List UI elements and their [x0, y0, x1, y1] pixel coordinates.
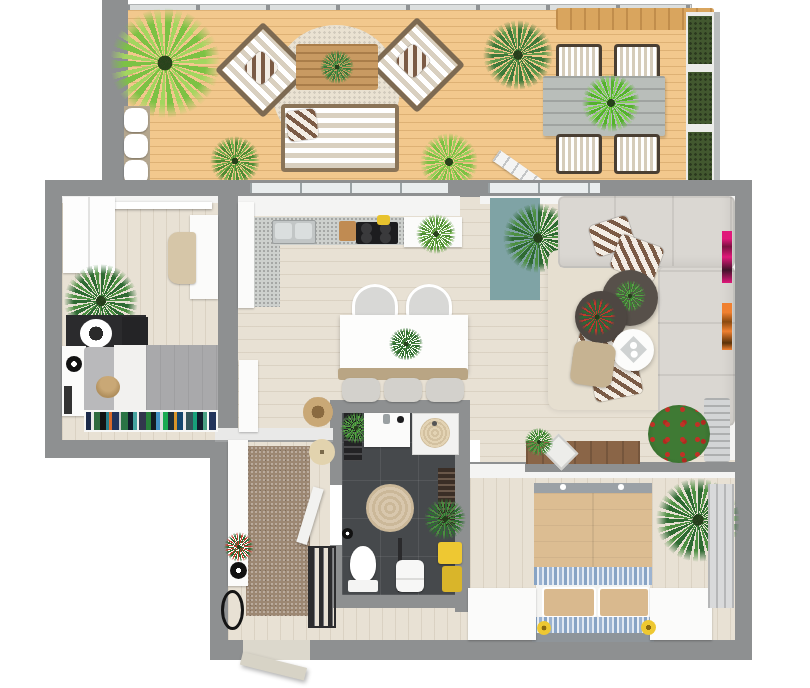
sideboard-plant	[524, 428, 554, 456]
daybed-sheet	[114, 345, 146, 415]
island-plant	[388, 328, 424, 360]
bed-sheet-patterned	[534, 567, 652, 585]
office-black-cabinet	[122, 317, 148, 348]
toilet-brush	[342, 528, 353, 539]
terrace-palm-plant	[110, 8, 220, 118]
bookshelf-books	[86, 412, 216, 430]
apartment-left-wall	[45, 180, 62, 458]
kitchen-counter-left	[254, 245, 280, 307]
cooktop	[356, 222, 398, 244]
apartment-right-wall	[735, 180, 752, 660]
bed-footboard	[534, 483, 652, 493]
bedside-lamp	[641, 620, 656, 635]
bench-cushion	[124, 108, 148, 132]
yellow-towels	[438, 542, 462, 564]
vanity-accessory	[397, 416, 404, 423]
deck-chair	[614, 134, 660, 174]
bedroom-radiator	[708, 484, 734, 608]
floor-plan	[0, 0, 810, 688]
nightstand	[468, 588, 536, 640]
bench-cushion	[124, 134, 148, 158]
office-chair	[168, 232, 196, 284]
kitchen-window	[250, 183, 448, 193]
console-bowl	[230, 562, 247, 579]
daybed-duvet	[146, 345, 218, 415]
orange-wall-art	[722, 303, 732, 350]
pink-wall-art	[722, 231, 732, 283]
counter-plant	[416, 214, 456, 254]
toilet-tank	[348, 580, 378, 592]
bench-cushion	[384, 378, 422, 402]
vertical-garden-hedge	[688, 72, 712, 124]
bed-pillow	[598, 587, 650, 618]
office-wardrobe	[63, 197, 115, 273]
floor-vase	[221, 590, 244, 630]
toilet-bowl	[350, 546, 376, 582]
kitchen-wall-cabinets	[238, 196, 460, 216]
office-round-lamp	[80, 319, 112, 348]
bathroom-palm	[424, 498, 466, 540]
footboard-knob	[618, 484, 624, 490]
rope-basket	[303, 397, 333, 427]
console-plant	[224, 532, 254, 562]
yellow-pan	[377, 215, 390, 225]
pouf	[569, 339, 617, 388]
dining-table-plant	[582, 74, 640, 132]
bed-duvet	[534, 493, 652, 567]
kitchen-tall-cabinet	[238, 202, 254, 308]
vertical-garden-hedge	[688, 132, 712, 182]
bedside-lamp	[537, 621, 551, 635]
bench-cushion	[426, 378, 464, 402]
sink-bowl	[295, 223, 312, 239]
bottom-wall	[310, 640, 752, 660]
sink-bowl	[275, 223, 292, 239]
footboard-knob	[560, 484, 566, 490]
bathroom-bottom-wall	[330, 595, 470, 608]
nightstand	[650, 588, 712, 640]
teddy-bear	[96, 376, 120, 398]
office-ceiling-light	[108, 202, 212, 209]
cutting-board	[339, 221, 356, 241]
potted-plant	[210, 136, 260, 186]
table-plant	[320, 50, 354, 84]
bathroom-round-rug	[366, 484, 414, 532]
shelf-item	[64, 386, 72, 414]
bed-pillow	[542, 587, 596, 618]
vanity-faucet	[383, 414, 390, 424]
shelf-speaker	[66, 356, 82, 372]
terrace-right-rail	[714, 12, 720, 184]
bench-cushion	[342, 378, 380, 402]
hallway-stool	[309, 439, 335, 465]
corridor-floor	[330, 608, 475, 640]
office-kitchen-wall	[218, 196, 238, 440]
vertical-garden-hedge	[688, 16, 712, 64]
flower-bush	[648, 405, 710, 463]
terrace-sofa-pillow	[285, 108, 319, 142]
terrace-sliding-door	[488, 183, 600, 193]
bottom-wall	[210, 640, 243, 660]
office-bottom-wall	[45, 440, 228, 458]
coffee-table-plant	[578, 298, 616, 336]
bed-headboard	[532, 633, 654, 642]
hall-closet	[239, 360, 258, 432]
yellow-towels	[442, 566, 462, 592]
bathroom-stool	[396, 560, 424, 592]
hallway-radiator	[308, 546, 336, 628]
deck-chair	[556, 134, 602, 174]
shower-drain	[432, 421, 437, 426]
